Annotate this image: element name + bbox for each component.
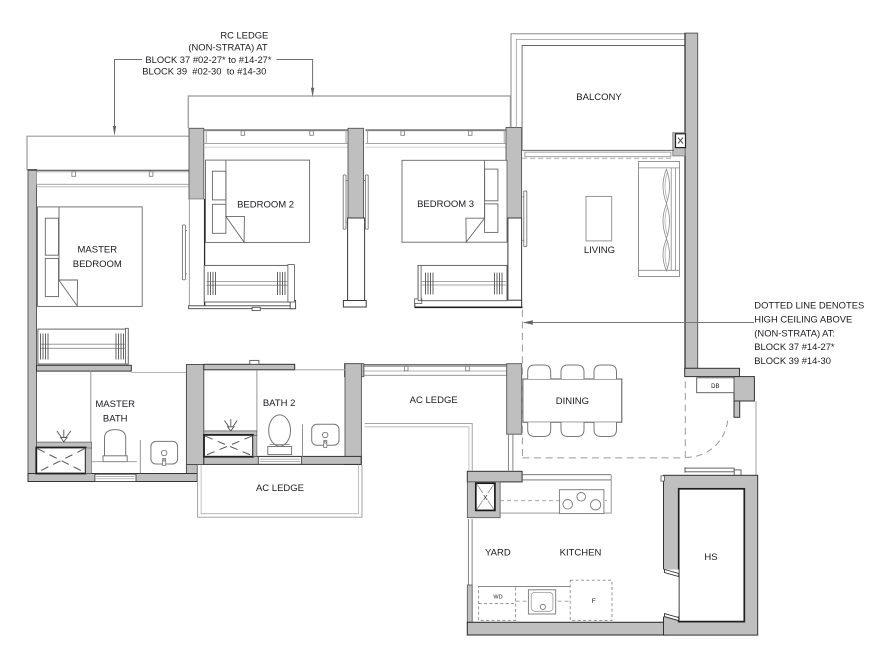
svg-text:BEDROOM 2: BEDROOM 2 [237, 200, 294, 211]
svg-text:AC LEDGE: AC LEDGE [410, 395, 458, 406]
svg-text:YARD: YARD [485, 548, 511, 559]
svg-text:LIVING: LIVING [584, 245, 615, 256]
svg-text:(NON-STRATA) AT: (NON-STRATA) AT [188, 42, 267, 53]
svg-text:F: F [592, 598, 596, 605]
svg-text:DB: DB [711, 384, 719, 390]
svg-text:HS: HS [704, 552, 717, 563]
svg-text:BLOCK 39 #14-30: BLOCK 39 #14-30 [754, 355, 831, 366]
svg-text:BEDROOM 3: BEDROOM 3 [417, 199, 474, 210]
svg-text:(NON-STRATA) AT:: (NON-STRATA) AT: [754, 327, 835, 338]
svg-text:BLOCK 37 #14-27*: BLOCK 37 #14-27* [754, 341, 835, 352]
svg-text:RC LEDGE: RC LEDGE [220, 29, 268, 40]
svg-text:AC LEDGE: AC LEDGE [256, 483, 304, 494]
svg-text:BATH: BATH [103, 413, 128, 424]
svg-text:BLOCK 39 #02-30 to #14-30: BLOCK 39 #02-30 to #14-30 [142, 66, 266, 77]
svg-text:BEDROOM: BEDROOM [73, 259, 122, 270]
svg-text:BATH 2: BATH 2 [263, 398, 296, 409]
svg-text:DOTTED LINE DENOTES: DOTTED LINE DENOTES [754, 300, 864, 311]
svg-text:HIGH CEILING ABOVE: HIGH CEILING ABOVE [754, 314, 852, 325]
svg-text:DINING: DINING [556, 396, 589, 407]
svg-text:BLOCK 37 #02-27* to #14-27*: BLOCK 37 #02-27* to #14-27* [145, 54, 271, 65]
svg-text:X: X [483, 495, 488, 502]
svg-text:MASTER: MASTER [78, 244, 118, 255]
svg-text:WD: WD [493, 595, 502, 601]
svg-text:KITCHEN: KITCHEN [560, 548, 602, 559]
svg-text:BALCONY: BALCONY [576, 92, 622, 103]
svg-text:MASTER: MASTER [95, 399, 135, 410]
